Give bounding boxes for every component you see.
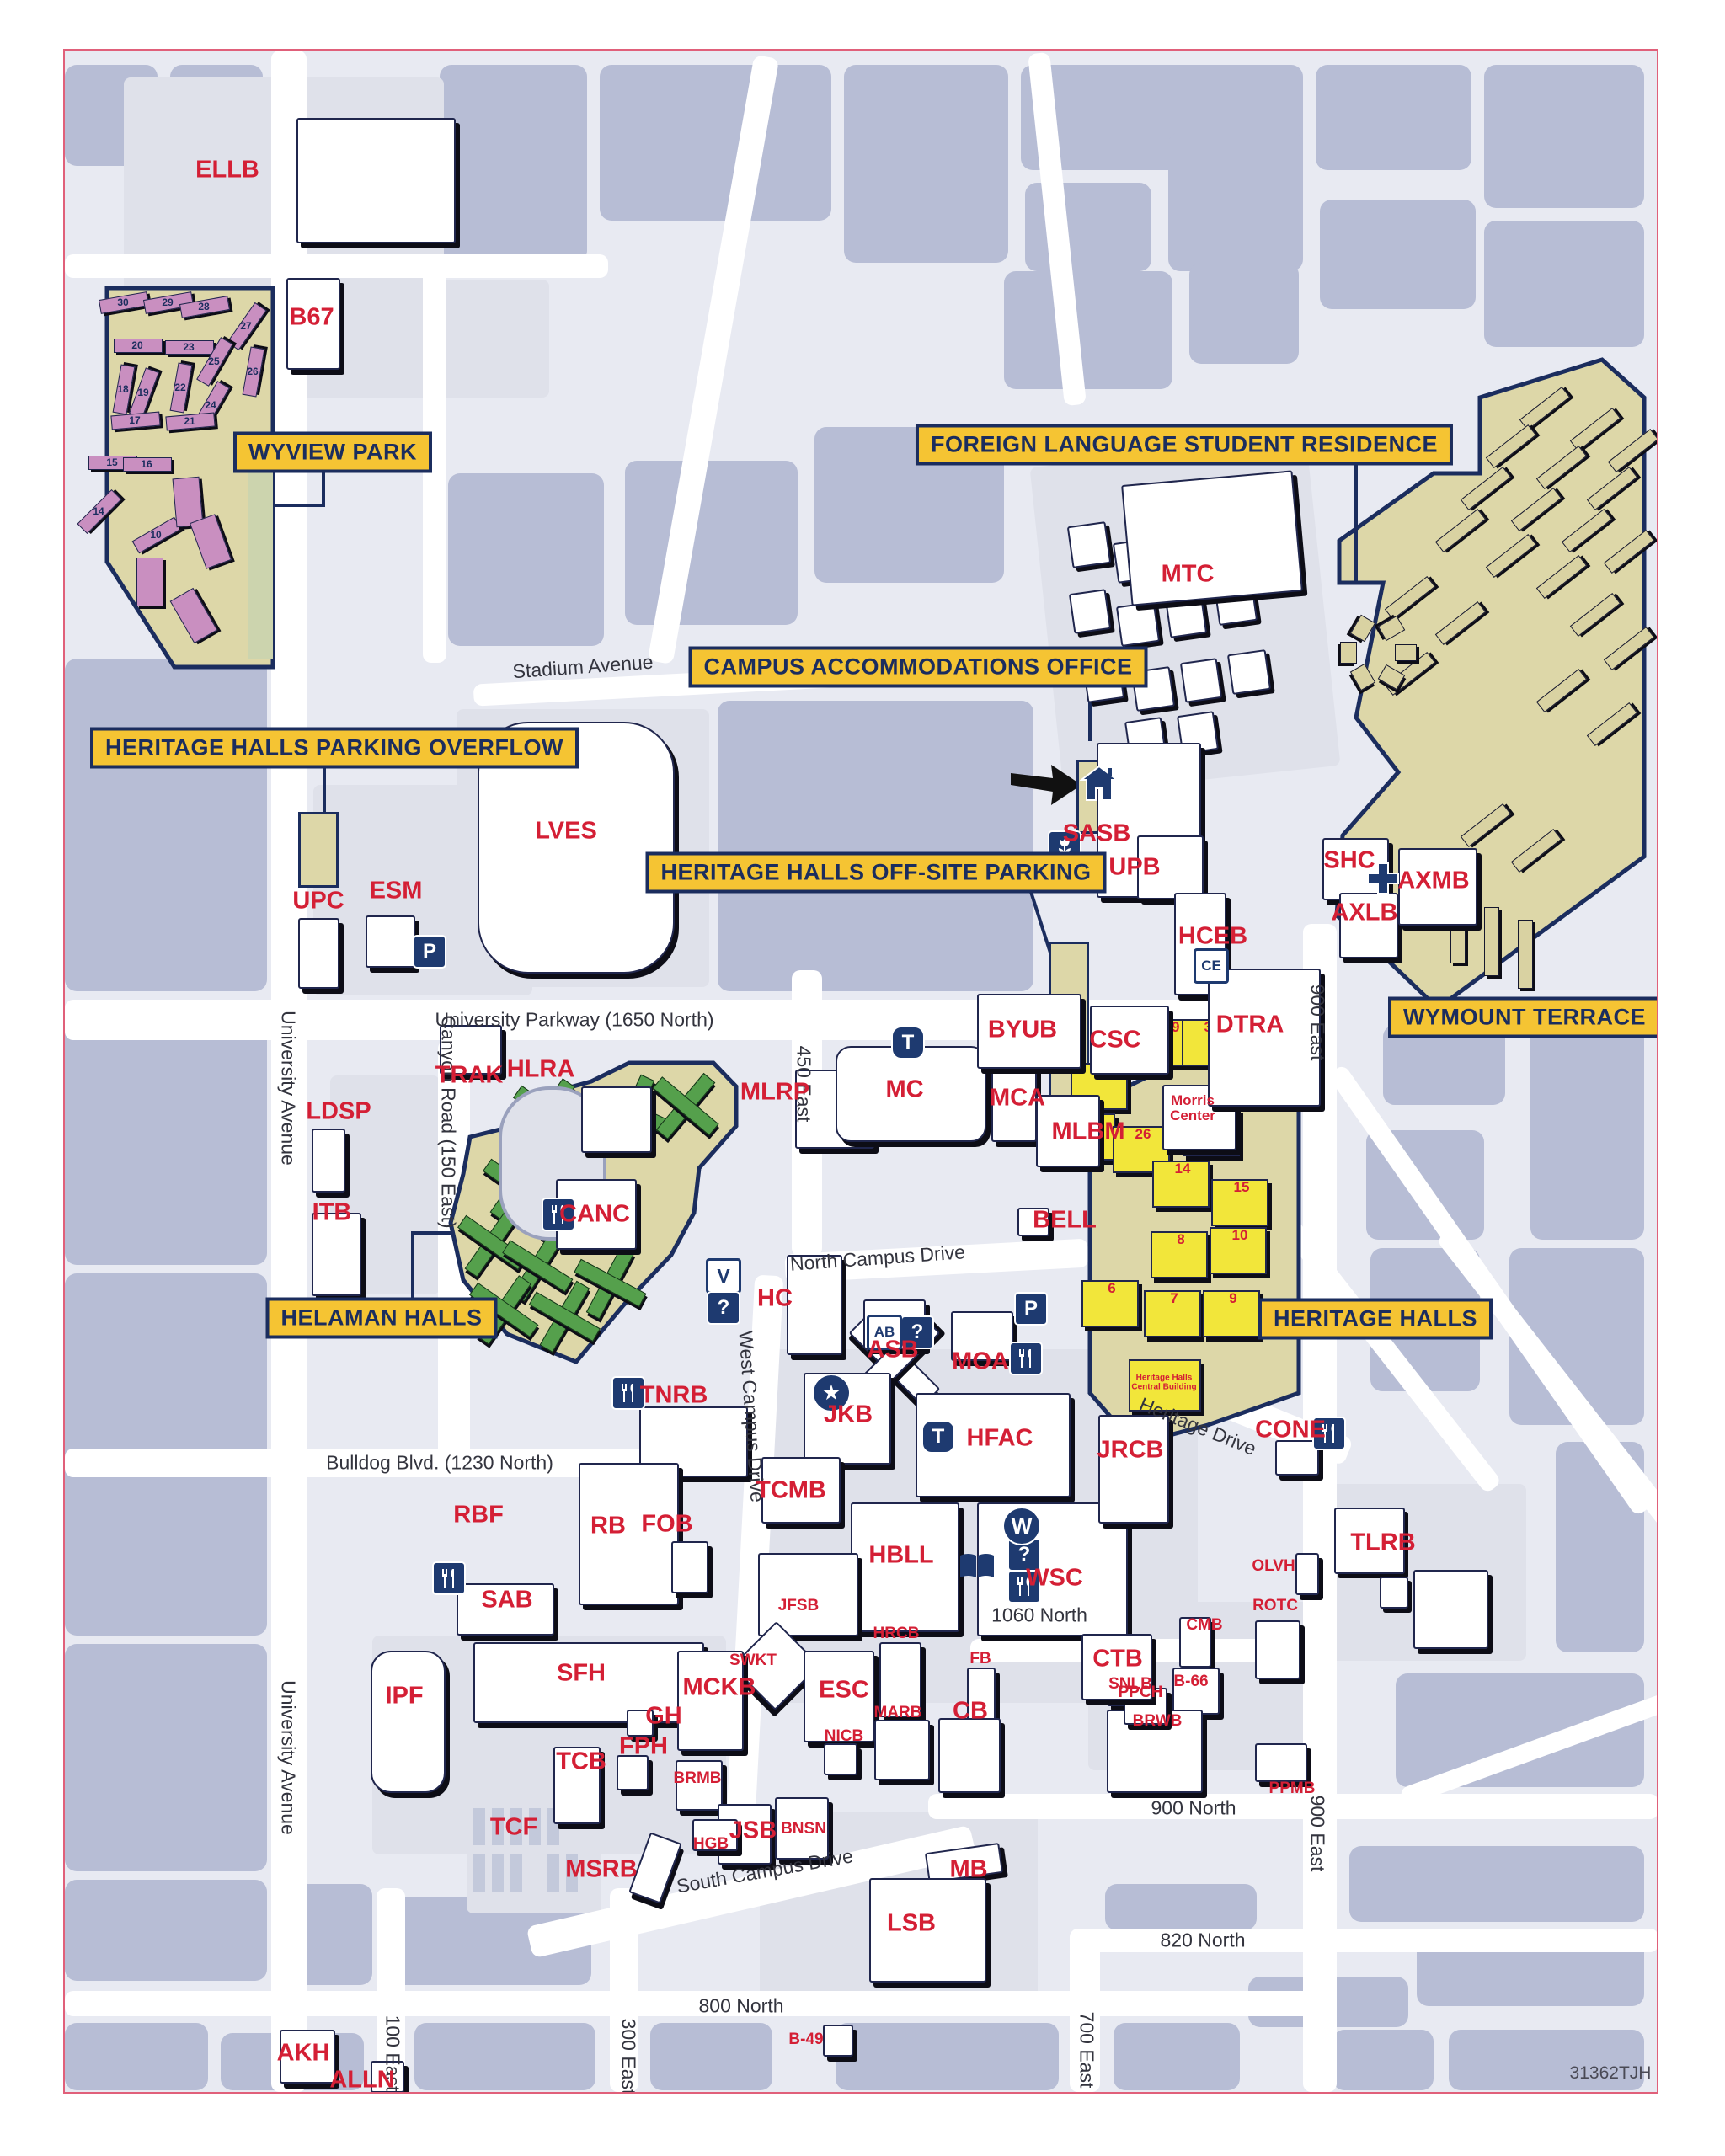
wymount-building — [1486, 534, 1536, 578]
building-label-ipf: IPF — [385, 1683, 423, 1710]
building-label-mtc: MTC — [1162, 561, 1215, 589]
wymount-building — [1570, 408, 1621, 451]
city-block — [1316, 65, 1471, 170]
wymount-building — [1519, 387, 1570, 430]
building-label-sab: SAB — [481, 1587, 532, 1614]
heritage-hall-number: 14 — [1175, 1161, 1191, 1177]
small-label: Heritage Halls Central Building — [1131, 1374, 1196, 1392]
building-jrcb — [1098, 1415, 1169, 1524]
building-label-mb: MB — [949, 1856, 987, 1884]
housing-office-icon — [1080, 765, 1119, 802]
building-label-axmb: AXMB — [1397, 867, 1469, 895]
building-b-49 — [823, 2025, 853, 2057]
city-block — [65, 1644, 267, 1871]
building-label-jrcb: JRCB — [1097, 1437, 1164, 1465]
building-marb — [874, 1720, 930, 1780]
building-cb — [938, 1718, 1001, 1793]
city-block — [1484, 65, 1644, 208]
campus-map-screenshot: 3029282720232526181922241721151614102930… — [0, 0, 1725, 2156]
area-label-heritage-halls: HERITAGE HALLS — [1258, 1299, 1493, 1340]
mtc-building — [1069, 589, 1111, 634]
building-label-axlb: AXLB — [1332, 899, 1398, 927]
city-block — [1004, 271, 1172, 389]
building-label-sasb: SASB — [1063, 820, 1131, 848]
wyview-building-number: 21 — [184, 415, 195, 427]
building-label-mlrp: MLRP — [740, 1079, 809, 1107]
wyview-building-number: 26 — [247, 366, 258, 377]
building-label-lsb: LSB — [887, 1910, 936, 1938]
heritage-hall-number: 10 — [1232, 1227, 1248, 1244]
building-label-moa: MOA — [952, 1348, 1009, 1376]
building-label-asb: ASB — [867, 1337, 918, 1364]
building-ppmb — [1255, 1743, 1307, 1782]
heritage-hall-number: 8 — [1177, 1231, 1184, 1248]
street-label: University Avenue — [277, 1680, 300, 1835]
wymount-building — [1570, 593, 1621, 637]
building-label-jsb: JSB — [729, 1817, 777, 1845]
wyview-building-number: 25 — [208, 355, 219, 367]
wymount-building — [1511, 829, 1562, 873]
wyview-building-number: 14 — [93, 505, 104, 517]
area-label-wymount-terrace: WYMOUNT TERRACE — [1388, 997, 1658, 1038]
building-esm — [366, 915, 415, 968]
wyview-building-number: 15 — [106, 456, 117, 468]
city-block — [65, 2023, 208, 2090]
city-block — [440, 65, 587, 263]
building-label-ldsp: LDSP — [306, 1098, 371, 1126]
street-label: Canyon Road (150 East) — [437, 1015, 460, 1228]
street-label: 1060 North — [991, 1604, 1087, 1627]
map-corner-code: 31362TJH — [1570, 2063, 1652, 2084]
area-label-wyview-park: WYVIEW PARK — [233, 432, 432, 473]
building-label-swkt: SWKT — [729, 1652, 777, 1670]
building-label-cb: CB — [953, 1698, 988, 1726]
building-label-ellb: ELLB — [195, 157, 259, 184]
street-label: University Avenue — [277, 1011, 300, 1166]
building-label-marb: MARB — [874, 1704, 922, 1722]
wymount-building — [1587, 467, 1637, 510]
wyview-building-number: 10 — [150, 529, 161, 541]
wyview-building-number: 29 — [162, 296, 173, 308]
parking-icon: P — [1014, 1292, 1048, 1326]
building-label-hfac: HFAC — [967, 1425, 1033, 1453]
small-label: Morris Center — [1170, 1093, 1215, 1123]
road — [65, 1991, 1320, 2016]
wymount-building — [1604, 627, 1654, 670]
building-label-tlrb: TLRB — [1350, 1529, 1415, 1557]
building-ldsp — [312, 1129, 345, 1193]
city-block — [650, 2023, 772, 2090]
wymount-building — [1536, 555, 1587, 599]
building-upc — [298, 918, 339, 989]
city-block — [1114, 2023, 1240, 2090]
flsr-building — [1395, 644, 1417, 661]
heritage-hall-number: 9 — [1229, 1290, 1236, 1307]
building-olvh — [1295, 1553, 1319, 1595]
library-icon — [959, 1552, 996, 1581]
street-label: Bulldog Blvd. (1230 North) — [326, 1452, 553, 1475]
city-block — [65, 1880, 267, 1981]
heritage-hall-number: 15 — [1234, 1179, 1250, 1196]
wyview-building-number: 23 — [183, 341, 194, 353]
city-block — [65, 659, 267, 991]
city-block — [1484, 221, 1644, 347]
building-label-rb: RB — [590, 1513, 626, 1540]
building-label-mc: MC — [885, 1076, 923, 1104]
wyview-building — [170, 588, 218, 643]
wymount-building — [1484, 907, 1499, 976]
city-block — [1332, 2030, 1434, 2090]
building — [1380, 1577, 1408, 1609]
building-rotc — [1255, 1620, 1300, 1679]
city-block — [718, 701, 1033, 991]
street-label: 900 East — [1306, 1796, 1329, 1872]
building-ipf — [371, 1651, 446, 1793]
flsr-building — [1378, 615, 1406, 640]
building-label-bnsn: BNSN — [781, 1820, 826, 1838]
street-label: 300 East — [617, 2019, 640, 2094]
building-label-csc: CSC — [1089, 1027, 1140, 1054]
tcf-lot-stall — [510, 1854, 522, 1892]
building-fob — [671, 1541, 708, 1593]
flsr-building — [1350, 664, 1375, 691]
wyview-building-number: 27 — [240, 320, 251, 332]
information-icon: ? — [707, 1291, 740, 1325]
area-label-foreign-language-student-residence: FOREIGN LANGUAGE STUDENT RESIDENCE — [916, 424, 1453, 466]
wymount-building — [1562, 509, 1612, 552]
building-label-canc: CANC — [559, 1201, 630, 1229]
city-block — [1349, 1846, 1644, 1922]
building-label-brmb: BRMB — [674, 1769, 722, 1788]
city-block — [625, 461, 798, 625]
wymount-building — [1536, 446, 1587, 489]
wyview-building-number: 30 — [117, 296, 128, 308]
city-block — [1530, 1021, 1644, 1240]
building-label-upc: UPC — [292, 888, 344, 915]
street-label: University Parkway (1650 North) — [435, 1009, 713, 1032]
green-strip — [248, 461, 273, 659]
wyview-building-number: 18 — [117, 383, 128, 395]
building-label-rbf: RBF — [453, 1502, 504, 1529]
building-label-mlbm: MLBM — [1052, 1118, 1125, 1146]
building-label-hbll: HBLL — [868, 1542, 933, 1570]
building-label-fob: FOB — [641, 1511, 692, 1539]
mtc-building — [1227, 649, 1271, 695]
tcf-lot-stall — [473, 1854, 485, 1892]
flsr-building — [1350, 614, 1375, 642]
building-label-itb: ITB — [312, 1199, 352, 1227]
street-label: 900 East — [1306, 985, 1329, 1061]
wymount-building — [1461, 803, 1511, 847]
continuing-education-icon: CE — [1194, 948, 1229, 984]
parking-icon: P — [413, 935, 446, 969]
wilkinson-center-icon: W — [1002, 1507, 1041, 1545]
building-tlrb — [1413, 1570, 1488, 1649]
building-label-wsc: WSC — [1026, 1565, 1083, 1593]
heritage-hall-number: 7 — [1170, 1290, 1178, 1307]
building-label-upb: UPB — [1108, 854, 1160, 882]
dining-icon — [1009, 1342, 1043, 1375]
tcf-lot-stall — [547, 1854, 559, 1892]
street-label: 900 North — [1151, 1797, 1236, 1820]
wymount-building — [1608, 429, 1658, 472]
building-label-b-49: B-49 — [788, 2031, 823, 2049]
building-label-shc: SHC — [1323, 847, 1375, 875]
building-label-fb: FB — [969, 1650, 991, 1668]
city-block — [844, 65, 1008, 263]
building-label-hgb: HGB — [693, 1835, 729, 1854]
building-label-ppmb: PPMB — [1269, 1780, 1316, 1798]
city-block — [1105, 1884, 1257, 1930]
wyview-building-number: 22 — [174, 382, 185, 393]
building-label-hlra: HLRA — [507, 1056, 575, 1084]
transit-icon: T — [891, 1026, 925, 1059]
heritage-hall-number: 6 — [1108, 1280, 1115, 1297]
wyview-building-number: 19 — [137, 387, 148, 398]
building-label-b-66: B-66 — [1173, 1673, 1208, 1691]
building-label-akh: AKH — [277, 2040, 330, 2068]
building-label-msrb: MSRB — [565, 1856, 637, 1884]
building-label-mckb: MCKB — [683, 1674, 756, 1702]
building-hlra — [581, 1086, 652, 1153]
wymount-building — [1435, 601, 1486, 645]
street-label: 700 East — [1076, 2012, 1098, 2089]
wyview-building-number: 28 — [198, 301, 209, 312]
building-label-olvh: OLVH — [1252, 1557, 1295, 1576]
building-label-esm: ESM — [370, 878, 423, 905]
wymount-building — [1486, 424, 1536, 468]
mtc-building — [1116, 601, 1160, 647]
wymount-building — [1511, 488, 1562, 531]
building-label-sfh: SFH — [557, 1660, 606, 1688]
campus-map: 3029282720232526181922241721151614102930… — [63, 49, 1658, 2094]
building-label-tcmb: TCMB — [756, 1477, 826, 1505]
building-label-dtra: DTRA — [1216, 1011, 1284, 1039]
area-label-heritage-halls-parking-overflow: HERITAGE HALLS PARKING OVERFLOW — [90, 728, 579, 769]
wymount-building — [1435, 509, 1486, 552]
tcf-lot-stall — [492, 1854, 504, 1892]
building-nicb — [824, 1743, 857, 1775]
building-label-hc: HC — [757, 1285, 793, 1313]
building-ellb — [296, 118, 456, 243]
building-label-esc: ESC — [819, 1677, 869, 1705]
building-label-lves: LVES — [535, 818, 597, 846]
mtc-building — [1067, 521, 1112, 568]
wyview-building-number: 20 — [131, 339, 142, 351]
area-label-campus-accommodations-office: CAMPUS ACCOMMODATIONS OFFICE — [689, 647, 1148, 688]
city-block — [1168, 132, 1303, 271]
city-block — [600, 65, 831, 221]
wyview-building — [190, 514, 232, 568]
heritage-hall-number: 26 — [1135, 1126, 1151, 1143]
building-label-jkb: JKB — [824, 1401, 873, 1429]
mtc-building — [1180, 658, 1222, 703]
tcf-lot-stall — [473, 1808, 485, 1845]
wyview-building-number: 17 — [129, 414, 140, 426]
area-label-heritage-halls-off-site-parking: HERITAGE HALLS OFF-SITE PARKING — [646, 852, 1107, 894]
wyview-building-number: 24 — [205, 399, 216, 411]
city-block — [1189, 263, 1299, 364]
street-label: 800 North — [698, 1995, 783, 2018]
building-label-b67: B67 — [289, 304, 334, 332]
flsr-building — [1340, 642, 1357, 664]
wymount-building — [1385, 576, 1435, 620]
building-label-nicb: NICB — [825, 1727, 863, 1746]
visitor-parking-icon: V — [706, 1258, 741, 1294]
wymount-building — [1604, 530, 1654, 574]
building-label-rotc: ROTC — [1252, 1597, 1298, 1615]
building-label-hrcb: HRCB — [873, 1625, 920, 1643]
wymount-building — [1518, 920, 1533, 989]
wyview-building — [136, 558, 163, 606]
building-label-cmb: CMB — [1186, 1616, 1222, 1635]
city-block — [414, 2023, 595, 2090]
building-label-brwb: BRWB — [1133, 1712, 1183, 1731]
building-label-jfsb: JFSB — [778, 1597, 820, 1615]
building-label-hceb: HCEB — [1178, 923, 1247, 951]
building-label-bell: BELL — [1033, 1207, 1097, 1235]
wymount-building — [1461, 467, 1511, 510]
building-label-tcf: TCF — [490, 1814, 537, 1842]
building-label-alln: ALLN — [329, 2067, 394, 2095]
building-label-ctb: CTB — [1092, 1646, 1143, 1673]
building-label-tnrb: TNRB — [640, 1382, 708, 1410]
building-label-mca: MCA — [990, 1085, 1045, 1113]
road — [65, 254, 608, 278]
area-label-helaman-halls: HELAMAN HALLS — [266, 1298, 498, 1339]
city-block — [1320, 200, 1476, 309]
street-label: 820 North — [1160, 1929, 1245, 1952]
building-label-gh: GH — [645, 1703, 682, 1731]
dining-icon — [432, 1561, 466, 1595]
building-label-byub: BYUB — [988, 1017, 1057, 1044]
building-label-fph: FPH — [619, 1733, 668, 1761]
wymount-building — [1587, 702, 1637, 746]
building-label-trak: TRAK — [435, 1062, 504, 1090]
building-label-tcb: TCB — [556, 1748, 606, 1776]
city-block — [836, 2023, 1059, 2090]
transit-icon: T — [921, 1420, 955, 1454]
wyview-building-number: 16 — [141, 458, 152, 470]
wymount-building — [1536, 669, 1587, 712]
city-block — [448, 473, 604, 646]
tan-parking-strip — [298, 812, 339, 888]
building-label-cone: CONE — [1255, 1417, 1326, 1444]
building-label-ppch: PPCH — [1119, 1684, 1163, 1702]
